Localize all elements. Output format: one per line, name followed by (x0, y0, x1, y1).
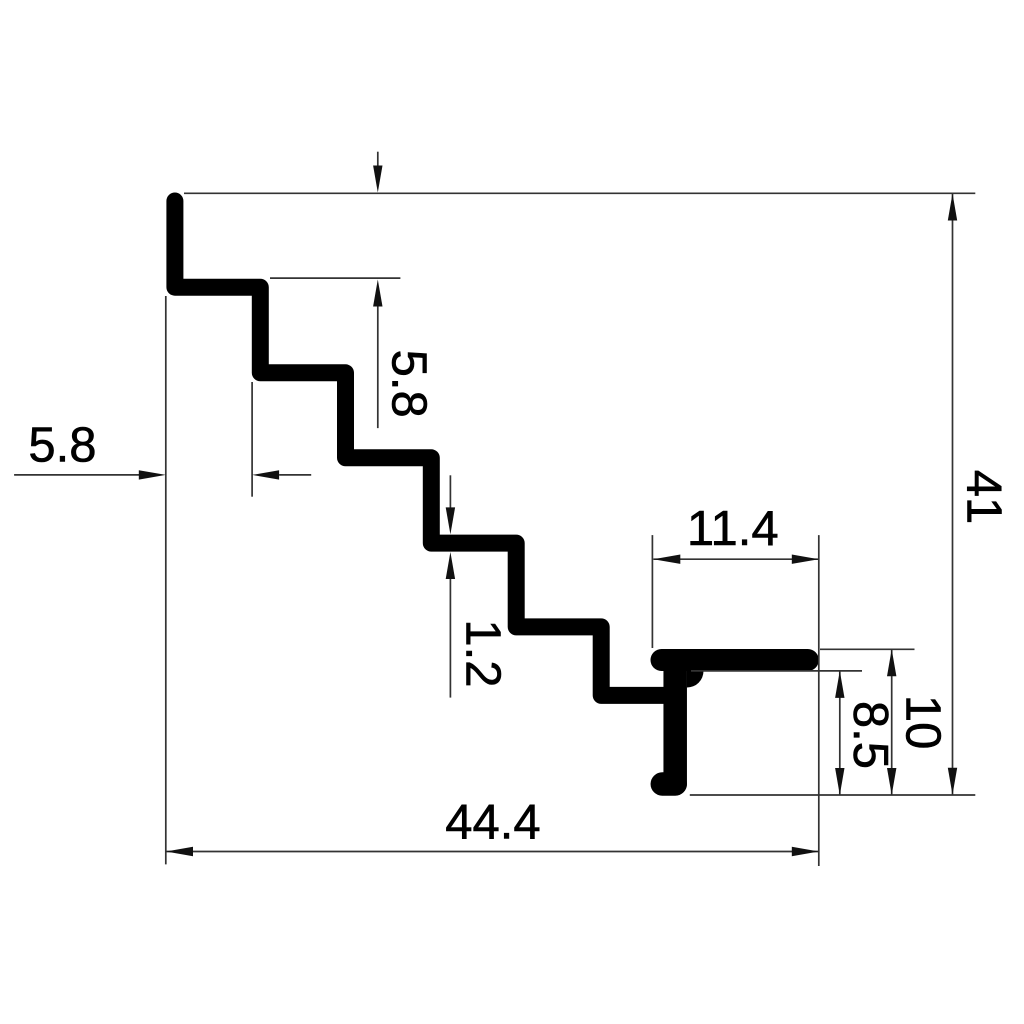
svg-text:11.4: 11.4 (687, 502, 779, 556)
svg-text:5.8: 5.8 (28, 418, 96, 472)
svg-text:44.4: 44.4 (445, 796, 540, 850)
svg-text:8.5: 8.5 (843, 701, 897, 769)
svg-text:1.2: 1.2 (456, 619, 510, 687)
svg-text:10: 10 (896, 695, 950, 750)
svg-text:5.8: 5.8 (382, 350, 436, 418)
svg-text:41: 41 (956, 470, 1010, 525)
